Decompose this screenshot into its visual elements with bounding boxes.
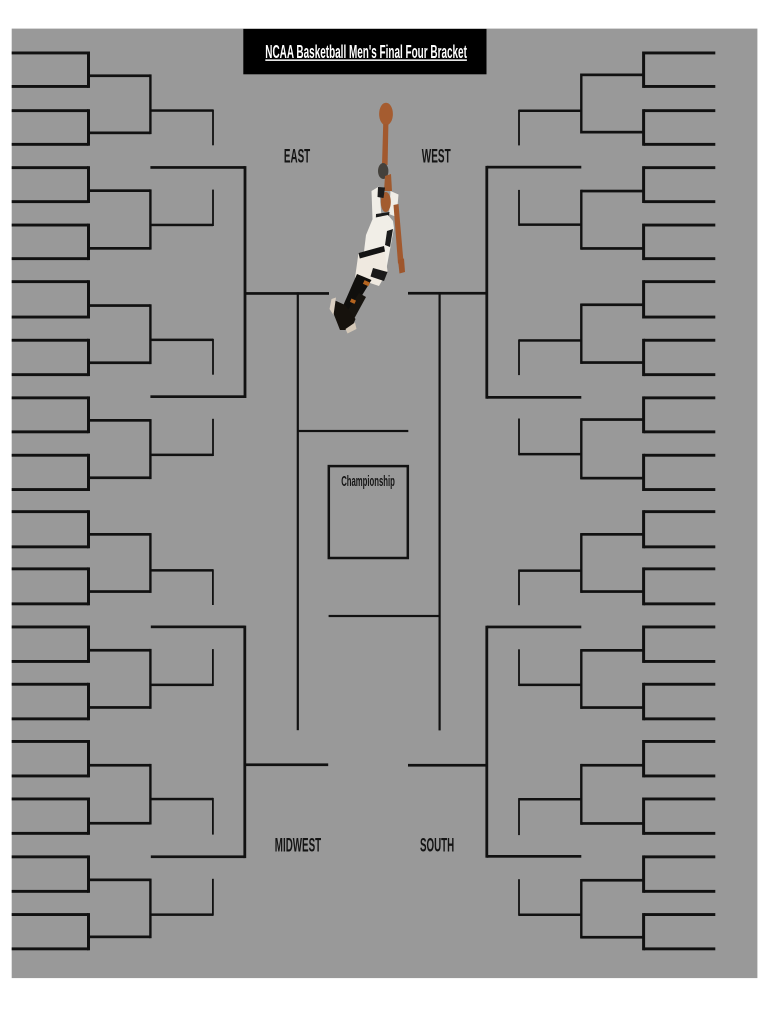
svg-text:Championship: Championship bbox=[341, 473, 395, 490]
svg-text:WEST: WEST bbox=[422, 146, 451, 167]
svg-text:MIDWEST: MIDWEST bbox=[275, 835, 321, 856]
svg-text:EAST: EAST bbox=[284, 147, 310, 168]
svg-text:SOUTH: SOUTH bbox=[420, 835, 454, 856]
svg-text:NCAA Basketball Men's Final Fo: NCAA Basketball Men's Final Four Bracket bbox=[265, 42, 467, 62]
